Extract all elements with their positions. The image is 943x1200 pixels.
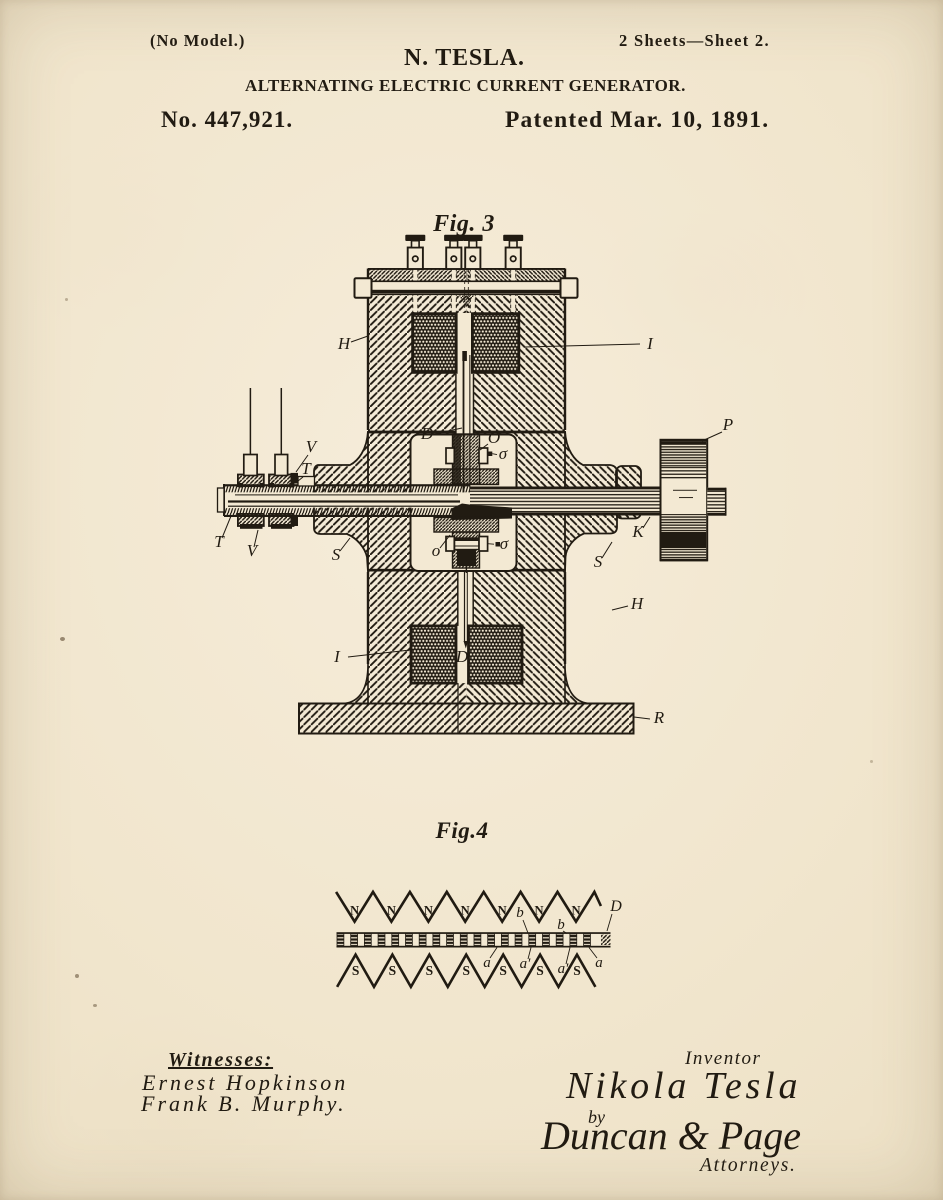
svg-text:σ: σ xyxy=(500,534,509,553)
svg-text:a′: a′ xyxy=(520,956,532,972)
svg-text:S: S xyxy=(389,963,397,978)
svg-text:S: S xyxy=(352,963,360,978)
svg-text:D: D xyxy=(455,647,469,666)
svg-text:N: N xyxy=(534,904,543,918)
svg-text:V: V xyxy=(247,541,260,560)
svg-text:Fig.4: Fig.4 xyxy=(435,818,489,843)
svg-text:P: P xyxy=(722,415,733,434)
svg-text:a′: a′ xyxy=(558,961,570,977)
svg-text:b: b xyxy=(557,917,565,933)
svg-text:N: N xyxy=(424,904,433,918)
svg-text:T: T xyxy=(301,459,312,478)
svg-text:D: D xyxy=(609,898,622,915)
svg-text:a: a xyxy=(483,955,491,971)
svg-text:b: b xyxy=(516,905,524,921)
svg-text:N: N xyxy=(571,904,580,918)
svg-text:S: S xyxy=(536,963,544,978)
svg-text:S: S xyxy=(332,545,341,564)
svg-text:H: H xyxy=(337,334,352,353)
svg-text:H: H xyxy=(630,594,645,613)
svg-text:N: N xyxy=(461,904,470,918)
svg-text:S: S xyxy=(462,963,470,978)
svg-text:S: S xyxy=(426,963,434,978)
svg-text:I: I xyxy=(333,647,341,666)
svg-text:o: o xyxy=(432,541,441,560)
svg-text:S: S xyxy=(499,963,507,978)
svg-text:D: D xyxy=(420,424,434,443)
svg-text:S: S xyxy=(594,552,603,571)
svg-text:N: N xyxy=(498,904,507,918)
svg-text:V: V xyxy=(306,437,319,456)
svg-text:Fig. 3: Fig. 3 xyxy=(432,211,495,237)
svg-text:S: S xyxy=(573,963,581,978)
svg-text:σ: σ xyxy=(499,444,508,463)
svg-text:K: K xyxy=(631,522,645,541)
svg-text:R: R xyxy=(653,708,665,727)
svg-text:N: N xyxy=(387,904,396,918)
svg-text:I: I xyxy=(646,334,654,353)
svg-text:N: N xyxy=(350,904,359,918)
